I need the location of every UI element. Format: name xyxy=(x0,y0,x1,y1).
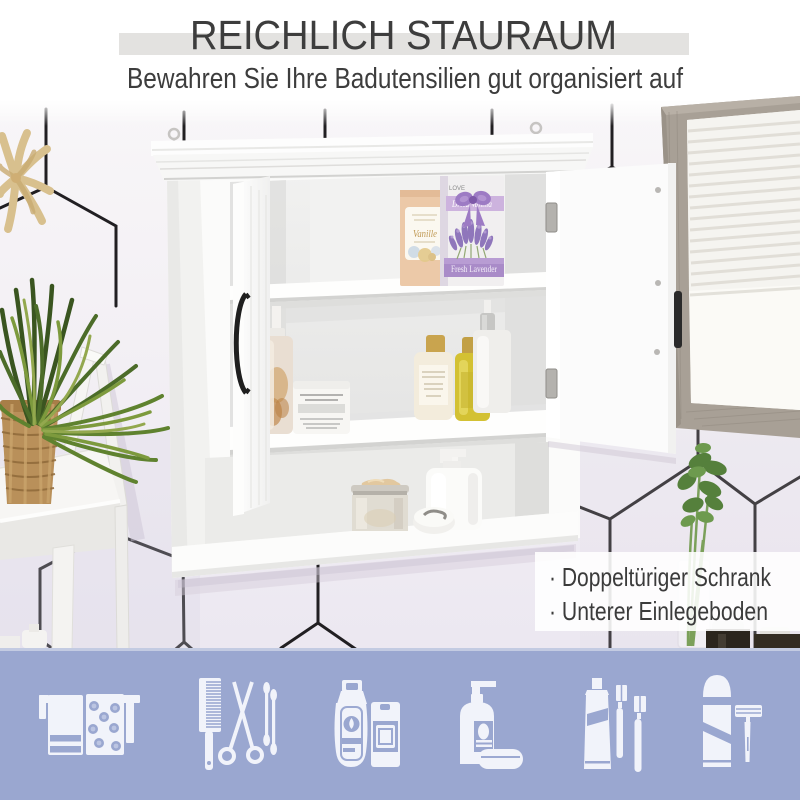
svg-text:Vanille: Vanille xyxy=(413,229,437,240)
svg-text:LOVE: LOVE xyxy=(449,186,465,192)
svg-text:· Unterer Einlegeboden: · Unterer Einlegeboden xyxy=(549,596,768,626)
svg-text:· Doppeltüriger Schrank: · Doppeltüriger Schrank xyxy=(549,562,772,592)
svg-text:Fresh Lavender: Fresh Lavender xyxy=(451,265,498,275)
svg-text:REICHLICH STAURAUM: REICHLICH STAURAUM xyxy=(190,12,617,58)
svg-text:Bewahren Sie Ihre Badutensilie: Bewahren Sie Ihre Badutensilien gut orga… xyxy=(127,63,684,95)
